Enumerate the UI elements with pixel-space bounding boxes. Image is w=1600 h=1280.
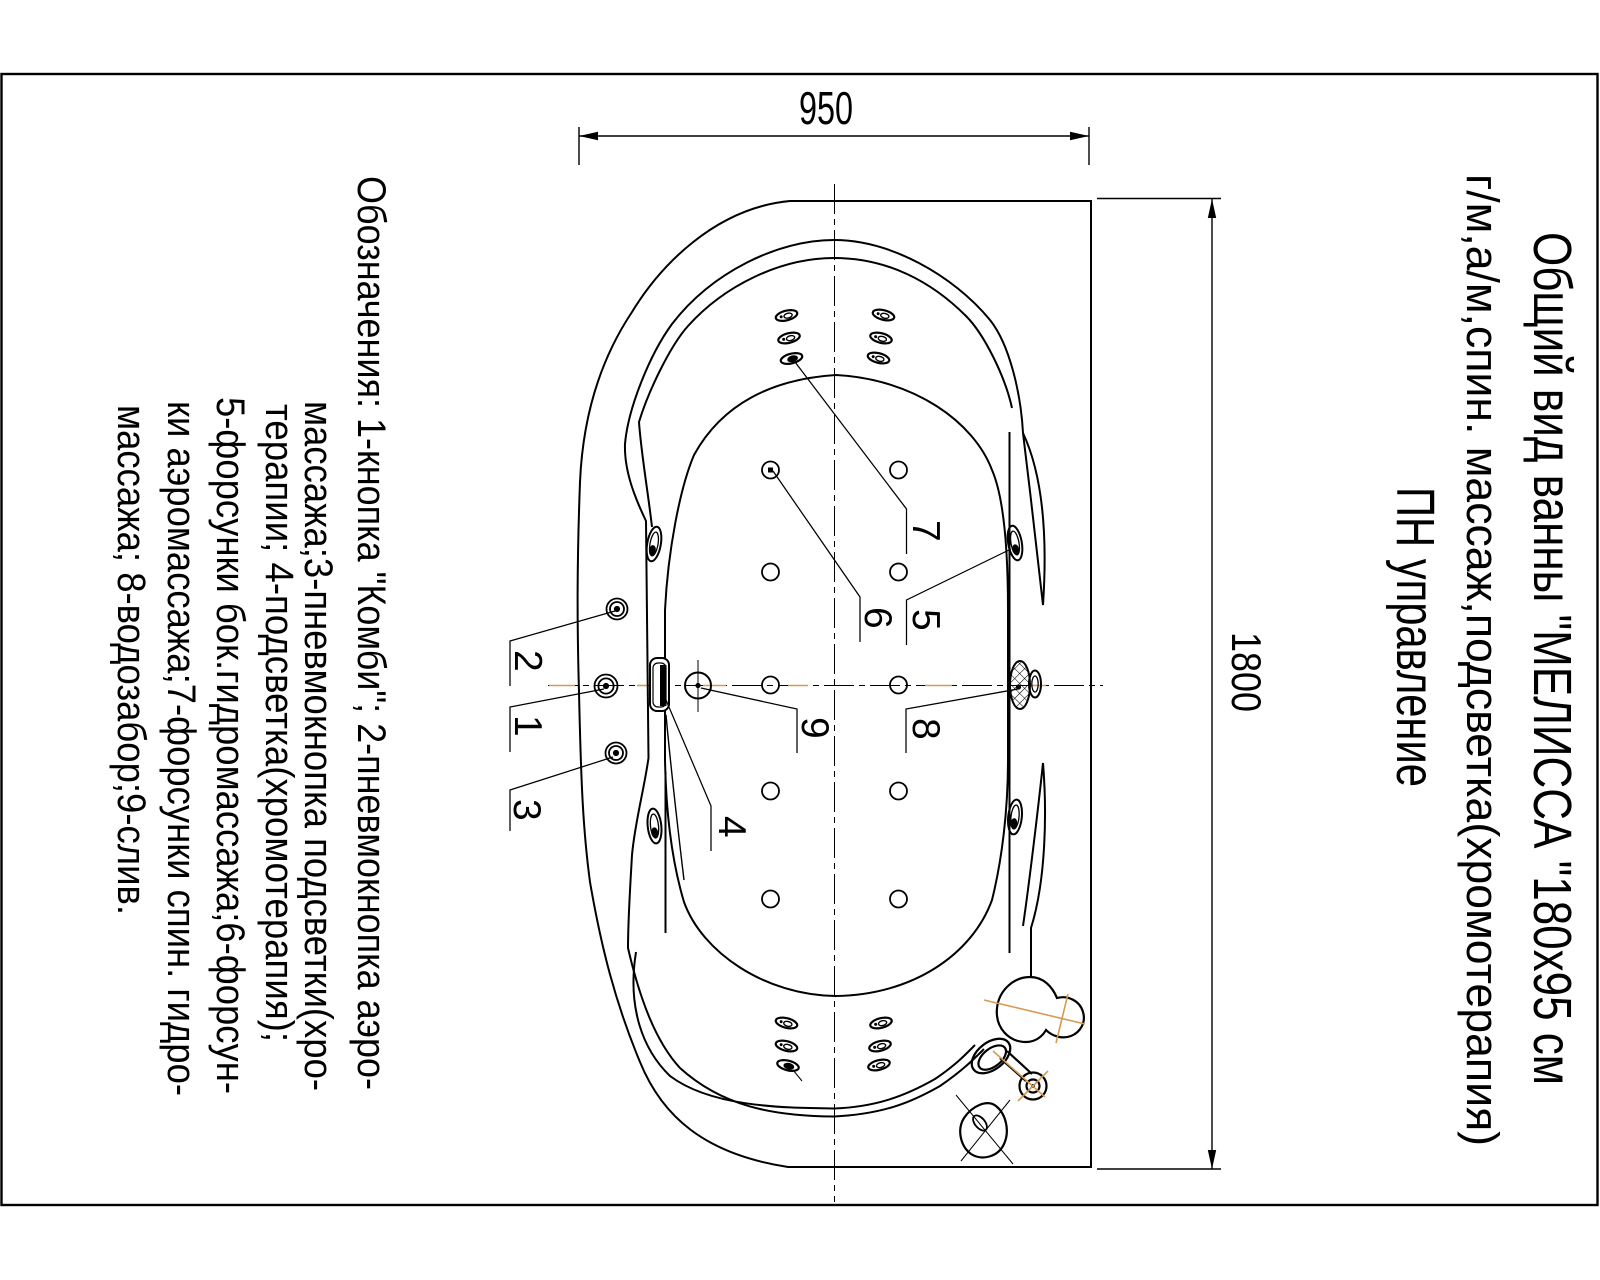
svg-text:5-форсунки бок.гидромассажа;6-: 5-форсунки бок.гидромассажа;6-форсун- — [208, 397, 252, 1094]
svg-text:терапии; 4-подсветка(хромотера: терапии; 4-подсветка(хромотерапия); — [257, 404, 301, 1042]
svg-text:1: 1 — [506, 715, 549, 737]
svg-text:3: 3 — [505, 799, 548, 821]
svg-text:массажа; 8-водозабор;9-слив.: массажа; 8-водозабор;9-слив. — [109, 405, 153, 915]
svg-text:7: 7 — [904, 520, 947, 542]
svg-text:8: 8 — [904, 718, 947, 740]
svg-text:ки аэромассажа;7-форсунки спин: ки аэромассажа;7-форсунки спин. гидро- — [159, 401, 203, 1096]
svg-text:2: 2 — [506, 650, 549, 672]
svg-text:4: 4 — [710, 816, 753, 838]
svg-text:6: 6 — [856, 607, 899, 629]
svg-text:Общий вид ванны "МЕЛИССА "180х: Общий вид ванны "МЕЛИССА "180х95 см — [1522, 232, 1582, 1085]
svg-text:ПН управление: ПН управление — [1385, 487, 1445, 787]
svg-text:5: 5 — [904, 609, 947, 631]
svg-text:950: 950 — [799, 82, 853, 134]
svg-text:г/м,а/м,спин. массаж,подсветка: г/м,а/м,спин. массаж,подсветка(хромотера… — [1457, 174, 1508, 1146]
svg-text:Обозначения: 1-кнопка "Комби";: Обозначения: 1-кнопка "Комби"; 2-пневмок… — [349, 176, 393, 1090]
svg-text:массажа;3-пневмокнопка подсвет: массажа;3-пневмокнопка подсветки(хро- — [296, 401, 340, 1091]
svg-text:9: 9 — [793, 717, 836, 739]
svg-text:1800: 1800 — [1223, 632, 1270, 712]
